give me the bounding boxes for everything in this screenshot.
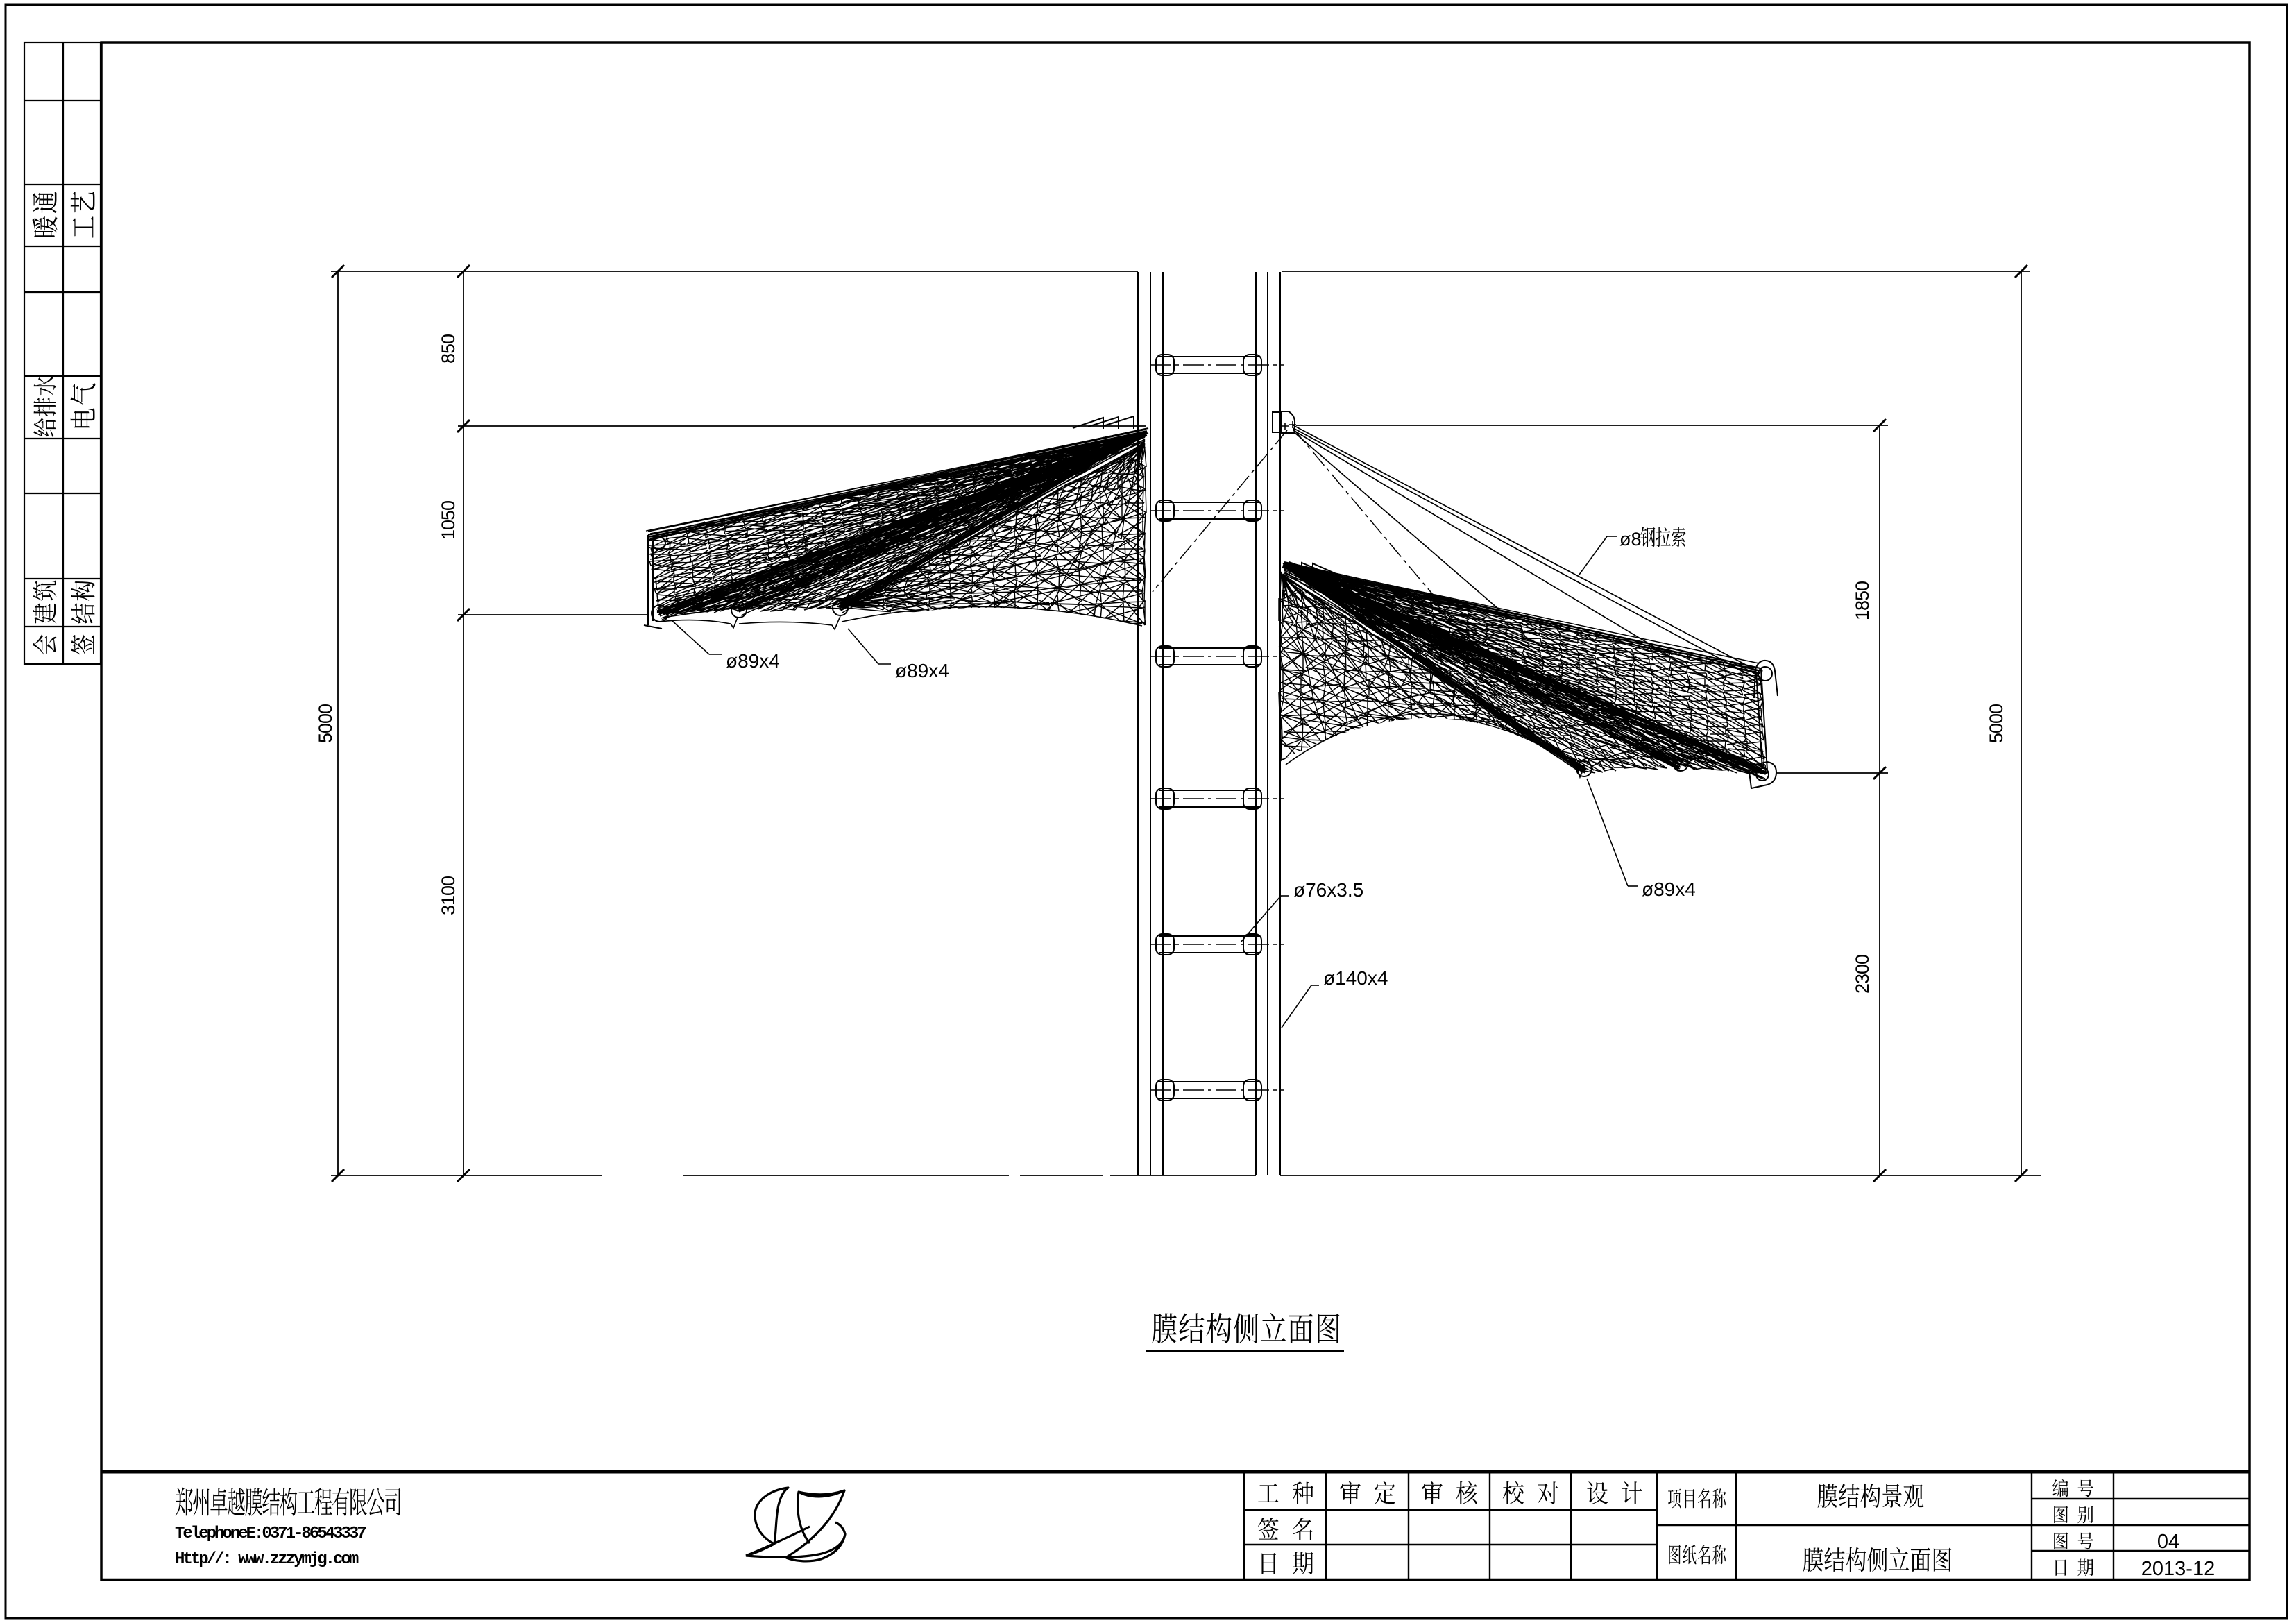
svg-text:04: 04 — [2157, 1531, 2179, 1553]
svg-text:ø89x4: ø89x4 — [726, 650, 780, 672]
svg-text:5000: 5000 — [315, 704, 336, 743]
svg-text:ø76x3.5: ø76x3.5 — [1293, 879, 1363, 901]
svg-text:ø89x4: ø89x4 — [895, 660, 949, 681]
svg-text:1050: 1050 — [438, 501, 459, 540]
svg-text:5000: 5000 — [1986, 704, 2007, 743]
svg-text:ø140x4: ø140x4 — [1323, 967, 1388, 989]
svg-text:3100: 3100 — [438, 876, 459, 915]
svg-text:1850: 1850 — [1852, 581, 1873, 620]
svg-text:2013-12: 2013-12 — [2141, 1558, 2215, 1580]
svg-text:2300: 2300 — [1852, 955, 1873, 994]
svg-text:ø89x4: ø89x4 — [1642, 878, 1696, 900]
svg-text:Http//: www.zzzymjg.com: Http//: www.zzzymjg.com — [175, 1550, 359, 1569]
svg-text:TelephoneE:0371-86543337: TelephoneE:0371-86543337 — [175, 1524, 366, 1543]
svg-text:ø8: ø8 — [1619, 529, 1642, 550]
svg-text:850: 850 — [438, 334, 459, 364]
